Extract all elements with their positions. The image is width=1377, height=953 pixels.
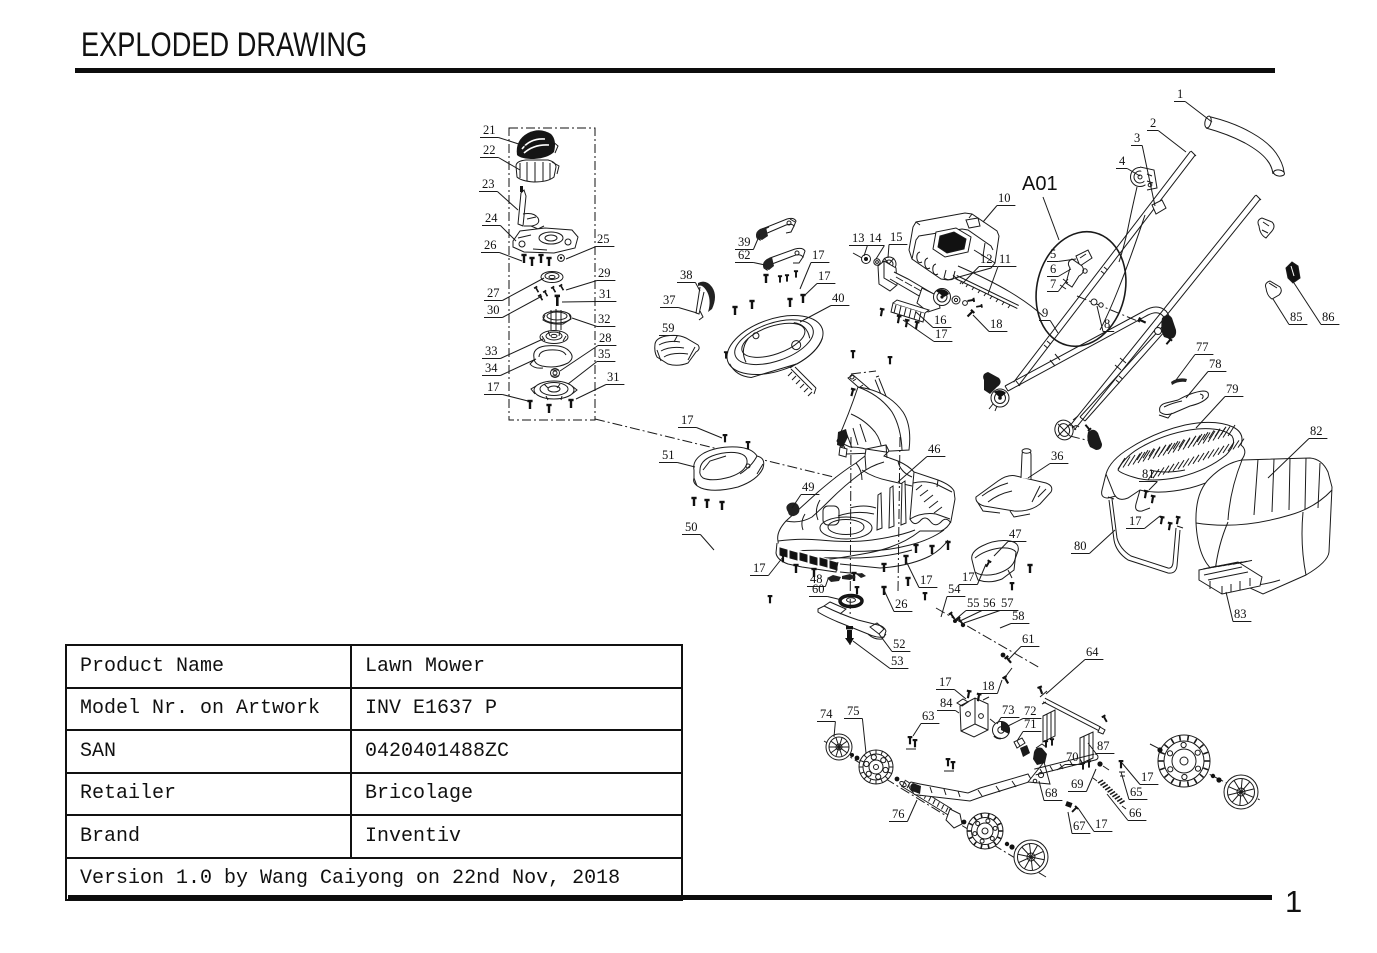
svg-text:63: 63 <box>922 709 935 723</box>
svg-text:68: 68 <box>1045 786 1058 800</box>
svg-text:5: 5 <box>1050 247 1056 261</box>
svg-text:73: 73 <box>1002 703 1015 717</box>
svg-text:54: 54 <box>948 582 961 596</box>
svg-text:70: 70 <box>1066 750 1079 764</box>
svg-text:55: 55 <box>967 596 980 610</box>
svg-text:79: 79 <box>1226 382 1239 396</box>
svg-text:17: 17 <box>753 561 766 575</box>
svg-text:26: 26 <box>484 238 497 252</box>
svg-text:17: 17 <box>935 327 948 341</box>
svg-text:29: 29 <box>598 266 611 280</box>
svg-text:3: 3 <box>1134 131 1140 145</box>
svg-text:58: 58 <box>1012 609 1025 623</box>
svg-text:57: 57 <box>1001 596 1014 610</box>
svg-text:27: 27 <box>487 286 500 300</box>
svg-text:25: 25 <box>597 232 610 246</box>
svg-text:35: 35 <box>598 347 611 361</box>
svg-text:78: 78 <box>1209 357 1222 371</box>
svg-text:10: 10 <box>998 191 1011 205</box>
svg-text:38: 38 <box>680 268 693 282</box>
svg-text:21: 21 <box>483 123 496 137</box>
svg-text:83: 83 <box>1234 607 1247 621</box>
svg-text:24: 24 <box>485 211 498 225</box>
svg-text:14: 14 <box>869 231 882 245</box>
svg-text:16: 16 <box>934 313 947 327</box>
svg-text:26: 26 <box>895 597 908 611</box>
svg-text:11: 11 <box>999 252 1011 266</box>
svg-text:30: 30 <box>487 303 500 317</box>
svg-text:17: 17 <box>818 269 831 283</box>
svg-text:6: 6 <box>1050 262 1056 276</box>
svg-text:31: 31 <box>607 370 620 384</box>
svg-text:13: 13 <box>852 231 865 245</box>
svg-text:62: 62 <box>738 248 751 262</box>
svg-text:81: 81 <box>1142 467 1155 481</box>
svg-text:75: 75 <box>847 704 860 718</box>
svg-text:34: 34 <box>485 361 498 375</box>
svg-text:77: 77 <box>1196 340 1209 354</box>
svg-text:17: 17 <box>487 380 500 394</box>
svg-text:72: 72 <box>1024 704 1037 718</box>
svg-text:17: 17 <box>939 675 952 689</box>
svg-text:50: 50 <box>685 520 698 534</box>
svg-text:67: 67 <box>1073 819 1086 833</box>
svg-text:36: 36 <box>1051 449 1064 463</box>
svg-text:A01: A01 <box>1022 173 1058 195</box>
svg-text:66: 66 <box>1129 806 1142 820</box>
svg-text:84: 84 <box>940 696 953 710</box>
svg-text:17: 17 <box>962 570 975 584</box>
svg-text:46: 46 <box>928 442 941 456</box>
svg-text:40: 40 <box>832 291 845 305</box>
svg-text:17: 17 <box>681 413 694 427</box>
svg-text:2: 2 <box>1150 116 1156 130</box>
svg-text:31: 31 <box>599 287 612 301</box>
svg-text:53: 53 <box>891 654 904 668</box>
svg-text:39: 39 <box>738 235 751 249</box>
svg-text:86: 86 <box>1322 310 1335 324</box>
svg-text:51: 51 <box>662 448 675 462</box>
svg-text:17: 17 <box>1095 817 1108 831</box>
svg-text:22: 22 <box>483 143 496 157</box>
svg-text:32: 32 <box>598 312 611 326</box>
svg-text:18: 18 <box>990 317 1003 331</box>
svg-text:8: 8 <box>1104 317 1110 331</box>
svg-text:56: 56 <box>983 596 996 610</box>
svg-text:60: 60 <box>812 582 825 596</box>
svg-text:15: 15 <box>890 230 903 244</box>
svg-text:71: 71 <box>1024 717 1037 731</box>
svg-text:37: 37 <box>663 293 676 307</box>
svg-text:7: 7 <box>1050 277 1056 291</box>
svg-text:17: 17 <box>920 573 933 587</box>
svg-text:64: 64 <box>1086 645 1099 659</box>
svg-text:59: 59 <box>662 321 675 335</box>
svg-text:47: 47 <box>1009 527 1022 541</box>
svg-text:17: 17 <box>1141 770 1154 784</box>
svg-text:18: 18 <box>982 679 995 693</box>
svg-text:82: 82 <box>1310 424 1323 438</box>
svg-text:23: 23 <box>482 177 495 191</box>
svg-text:61: 61 <box>1022 632 1035 646</box>
svg-text:1: 1 <box>1177 87 1183 101</box>
svg-text:74: 74 <box>820 707 833 721</box>
svg-text:76: 76 <box>892 807 905 821</box>
svg-text:9: 9 <box>1042 306 1048 320</box>
svg-text:12: 12 <box>980 252 993 266</box>
svg-text:4: 4 <box>1119 154 1126 168</box>
svg-text:49: 49 <box>802 480 815 494</box>
svg-text:85: 85 <box>1290 310 1303 324</box>
svg-text:80: 80 <box>1074 539 1087 553</box>
svg-text:87: 87 <box>1097 739 1110 753</box>
svg-text:33: 33 <box>485 344 498 358</box>
svg-text:52: 52 <box>893 637 906 651</box>
svg-text:17: 17 <box>1129 514 1142 528</box>
svg-text:28: 28 <box>599 331 612 345</box>
svg-text:69: 69 <box>1071 777 1084 791</box>
svg-text:17: 17 <box>812 248 825 262</box>
svg-text:65: 65 <box>1130 785 1143 799</box>
